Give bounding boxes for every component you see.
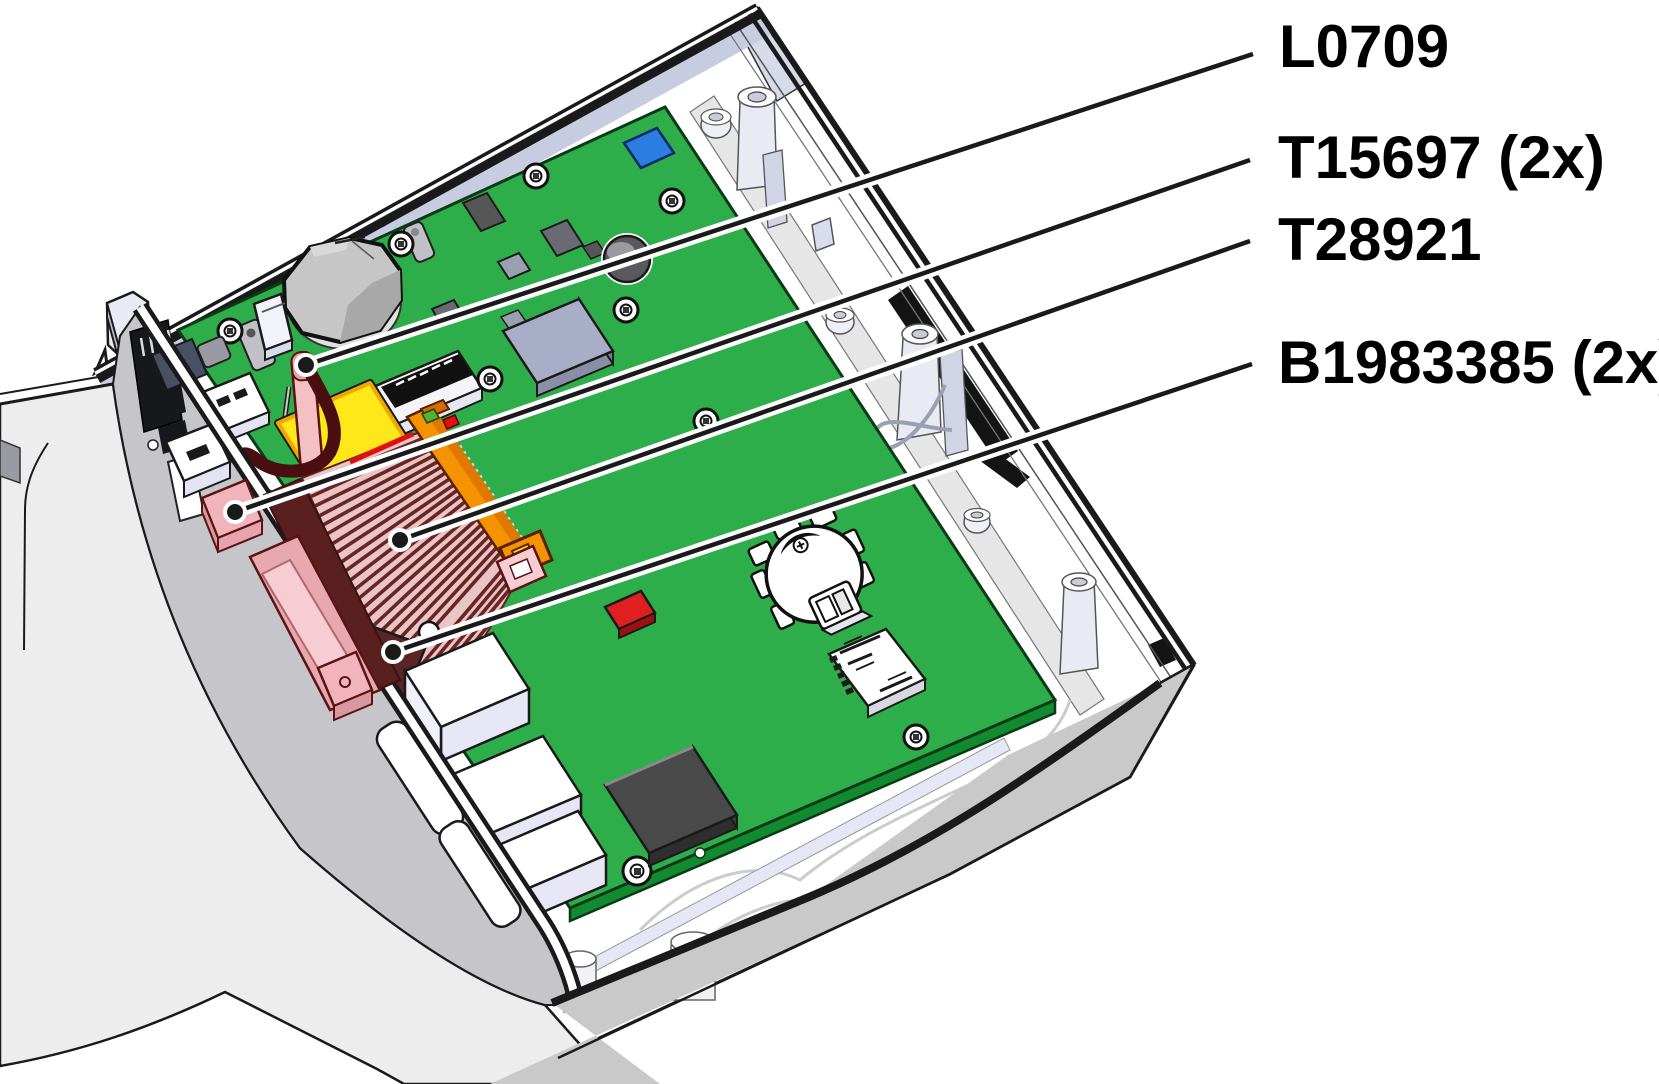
svg-text:T15697 (2x): T15697 (2x) xyxy=(1278,124,1605,191)
svg-text:B1983385 (2x): B1983385 (2x) xyxy=(1278,329,1659,396)
svg-text:T28921: T28921 xyxy=(1278,206,1482,273)
svg-text:L0709: L0709 xyxy=(1279,13,1449,80)
